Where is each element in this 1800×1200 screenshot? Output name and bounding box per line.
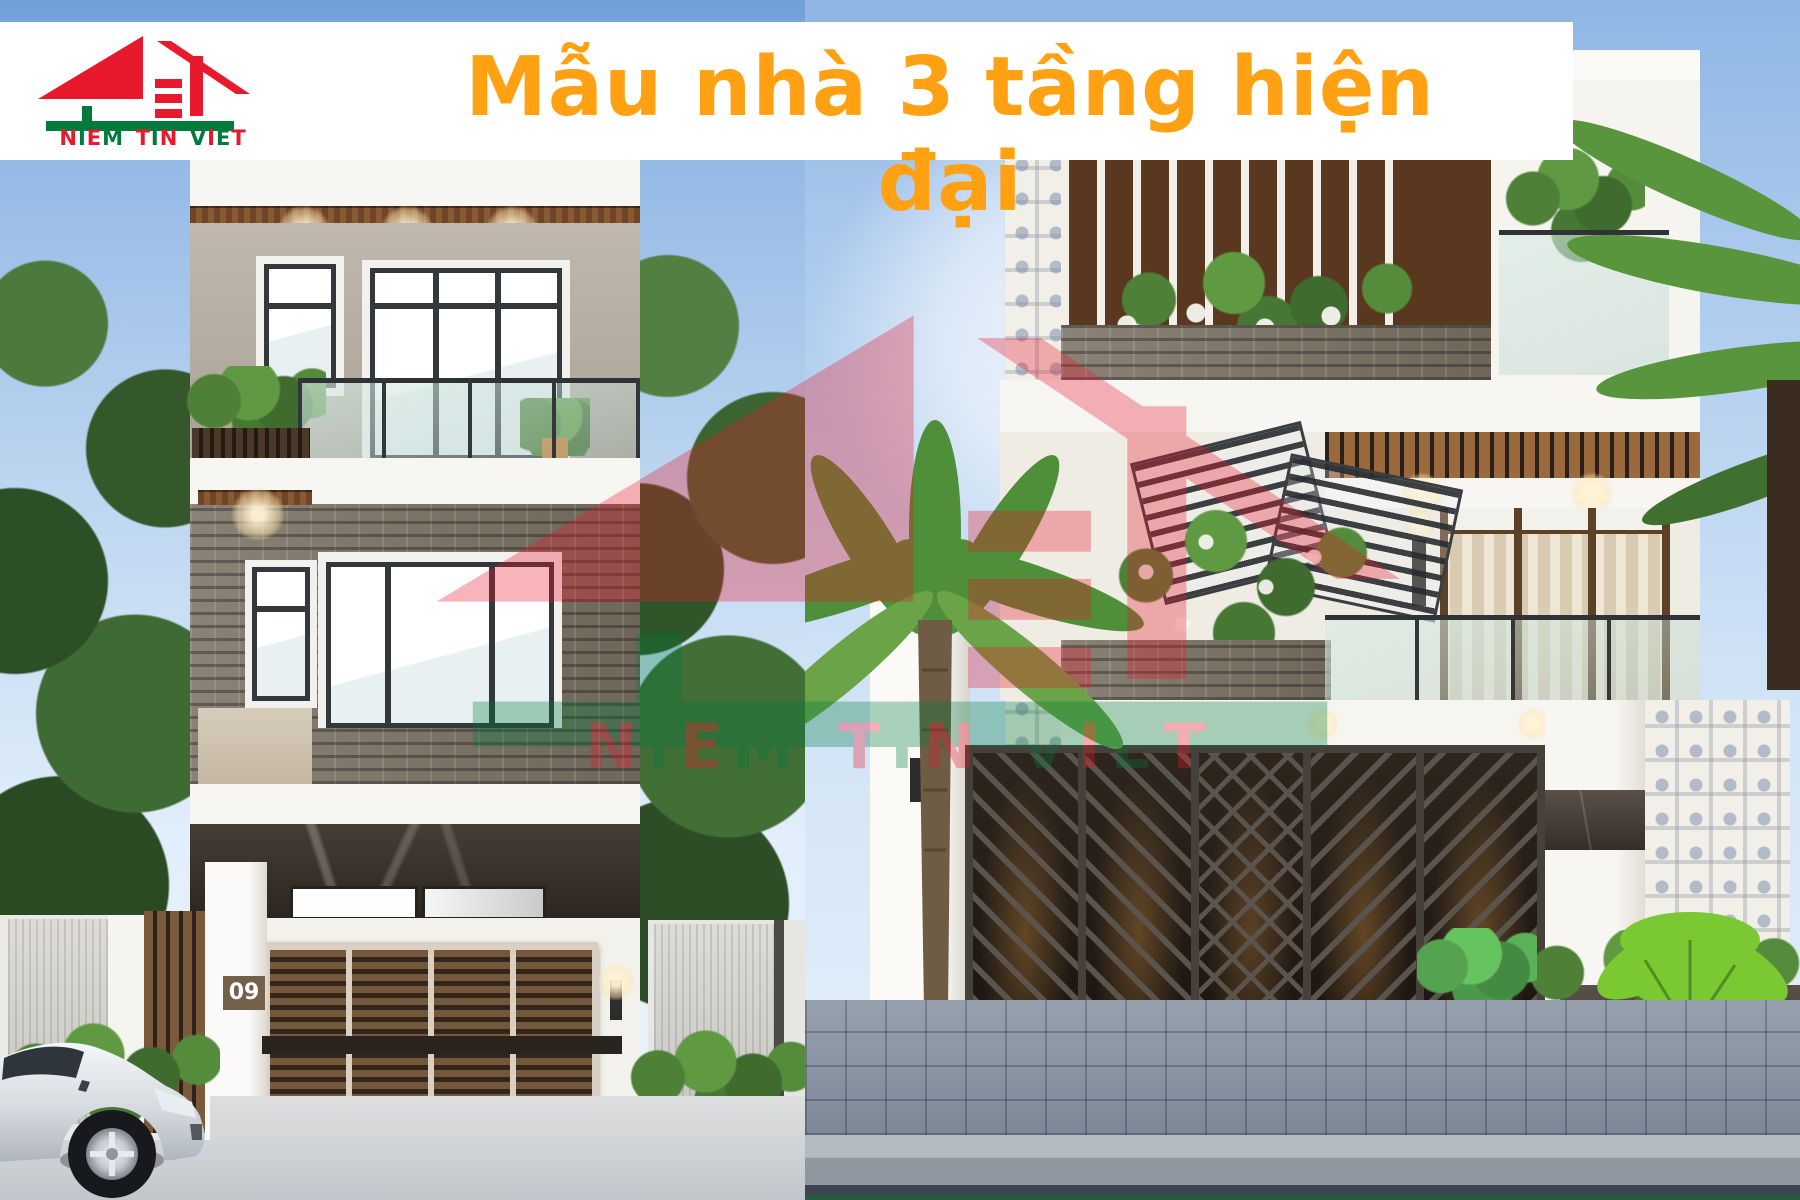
poster: 09 [0, 0, 1800, 1200]
transom-window [422, 886, 546, 920]
transom-window [290, 886, 418, 920]
logo-house-icon [30, 26, 250, 131]
balcony-parapet [198, 708, 312, 784]
niem-tin-viet-logo: NIEMTINVIET [28, 24, 288, 158]
house-number-plate: 09 [223, 976, 265, 1010]
gate-panel [1199, 753, 1303, 1002]
car-suv [0, 1028, 210, 1200]
downlight-icon [226, 482, 290, 546]
logo-text: NIEMTINVIET [58, 126, 248, 150]
top-balcony-glass-rail [298, 378, 640, 460]
mid-big-window-trim [318, 552, 562, 728]
stone-accent-band [1545, 790, 1645, 850]
page-title: Mẫu nhà 3 tầng hiện đại [440, 40, 1460, 230]
mid-big-window [326, 562, 554, 728]
house-number: 09 [229, 980, 260, 1005]
mid-small-window [252, 567, 310, 701]
gate-panel [1311, 753, 1416, 1002]
palm-tree-icon [805, 370, 1160, 1020]
floor-slab [190, 784, 640, 824]
window-rail [269, 303, 331, 309]
paved-driveway [805, 1000, 1800, 1135]
warm-light [1304, 705, 1342, 743]
mid-small-window-trim [245, 560, 317, 708]
grass-strip [805, 1195, 1800, 1200]
window-transom-rail [375, 303, 557, 309]
title-banner: NIEMTINVIET Mẫu nhà 3 tầng hiện đại [0, 22, 1573, 160]
lamp-glow [594, 960, 639, 1005]
curb-step [805, 1135, 1800, 1185]
gate-bottom-shadow [262, 1036, 622, 1054]
